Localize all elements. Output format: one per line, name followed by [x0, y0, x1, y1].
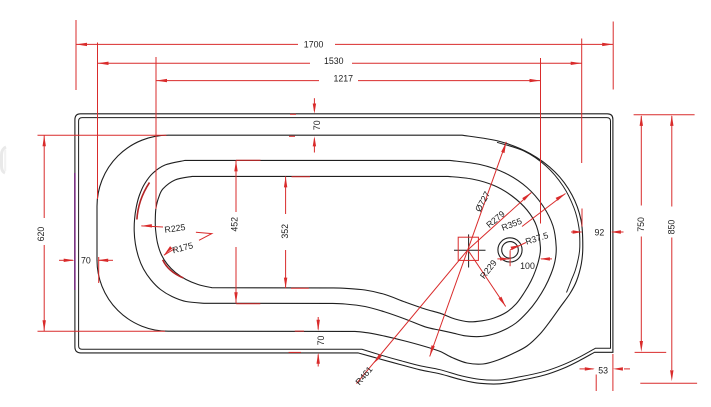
svg-text:452: 452: [229, 217, 239, 232]
svg-text:620: 620: [36, 227, 46, 242]
svg-text:1530: 1530: [324, 56, 344, 66]
svg-text:352: 352: [280, 224, 290, 239]
svg-text:1700: 1700: [304, 40, 324, 50]
svg-text:1217: 1217: [334, 74, 354, 84]
svg-text:100: 100: [520, 261, 535, 271]
svg-text:750: 750: [636, 217, 646, 232]
svg-text:70: 70: [316, 336, 326, 346]
svg-text:92: 92: [595, 228, 605, 238]
svg-text:53: 53: [598, 365, 608, 375]
svg-text:70: 70: [312, 120, 322, 130]
svg-text:850: 850: [667, 220, 677, 235]
svg-text:70: 70: [81, 256, 91, 266]
